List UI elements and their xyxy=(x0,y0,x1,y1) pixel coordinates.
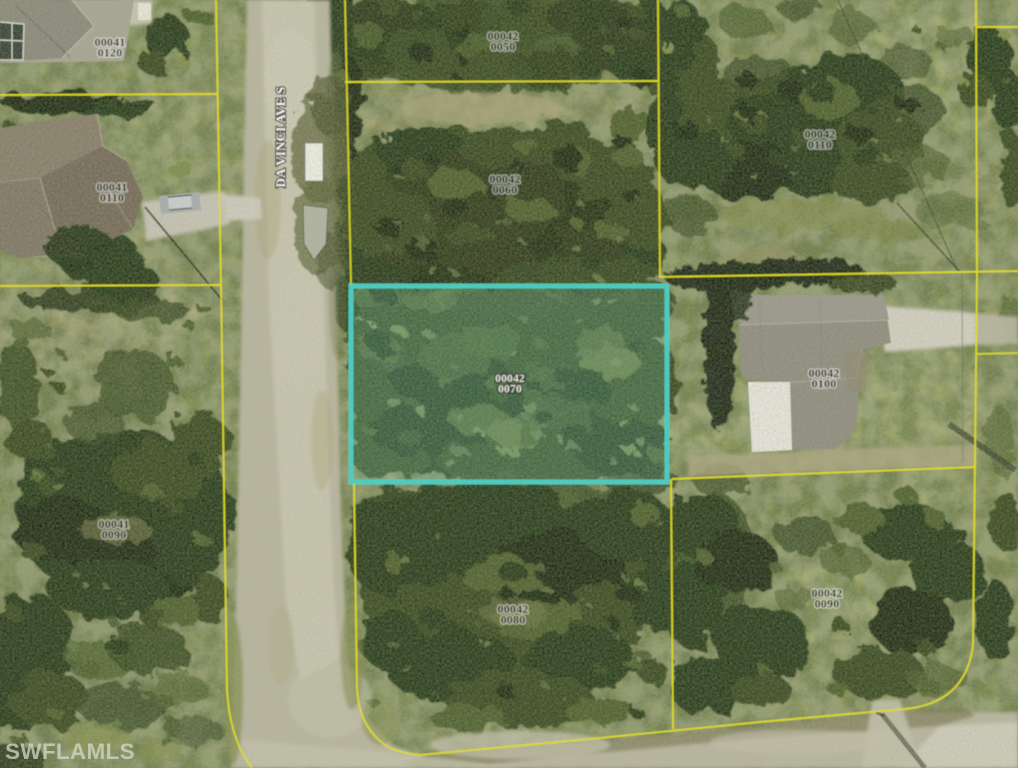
svg-text:SWFLAMLS: SWFLAMLS xyxy=(5,739,135,764)
